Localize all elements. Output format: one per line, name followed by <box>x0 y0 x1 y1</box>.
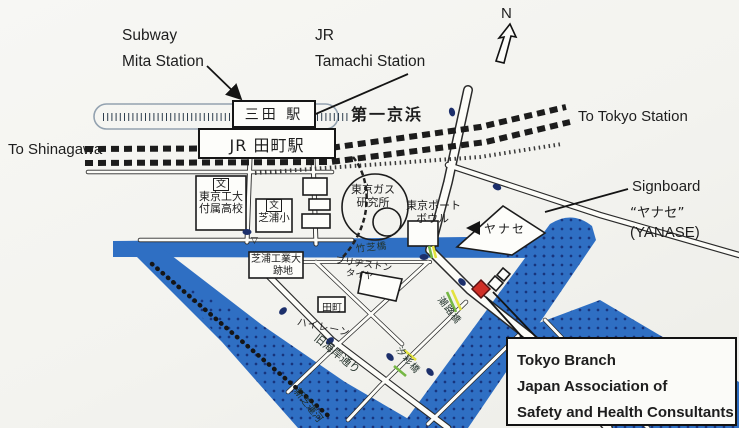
triangle-mark: ▽ <box>251 236 258 246</box>
tamachi-station-box: JR 田町駅 <box>198 128 336 159</box>
north-label: N <box>501 5 512 22</box>
destination-box: Tokyo Branch Japan Association of Safety… <box>506 337 737 426</box>
tokyo-gas-inner-circle <box>373 208 401 236</box>
signboard-label: Signboard <box>632 178 700 195</box>
signboard-jp-label: “ヤナセ” <box>630 201 685 221</box>
mita-station-box: 三田 駅 <box>232 100 316 128</box>
yanase-label: ヤナセ <box>484 220 526 237</box>
school-icon: 文 <box>266 199 282 212</box>
to-tokyo-station-label: To Tokyo Station <box>578 108 688 125</box>
small-building-2 <box>309 199 330 210</box>
tamachi-station-label: Tamachi Station <box>315 53 425 71</box>
map-canvas: Subway Mita Station JR Tamachi Station N… <box>0 0 739 428</box>
tokyo-tech-hs-label: 文 東京工大 付属高校 <box>197 179 245 216</box>
hilane-name-label: 田町 <box>322 299 342 314</box>
small-building-1 <box>303 178 327 195</box>
destination-line-2: Japan Association of <box>517 374 735 400</box>
tokyo-gas-label: 東京ガス 研究所 <box>347 184 399 209</box>
mita-station-label: Mita Station <box>122 53 204 71</box>
small-building-3 <box>302 214 330 228</box>
daiichi-keihin-label: 第一京浜 <box>351 101 423 125</box>
destination-line-3: Safety and Health Consultants <box>517 400 735 426</box>
north-arrow-icon <box>496 24 516 63</box>
jr-label: JR <box>315 27 334 45</box>
mita-arrow <box>207 66 240 98</box>
to-shinagawa-label: To Shinagawa <box>8 141 102 158</box>
subway-label: Subway <box>122 27 177 45</box>
shibaura-es-label: 文 芝浦小 <box>257 201 291 224</box>
signboard-en-label: (YANASE) <box>630 224 700 241</box>
port-bowl-label: 東京ポート ボウル <box>406 200 468 225</box>
destination-line-1: Tokyo Branch <box>517 348 735 374</box>
shibaura-tech-label: 芝浦工業大 跡地 <box>249 254 303 277</box>
